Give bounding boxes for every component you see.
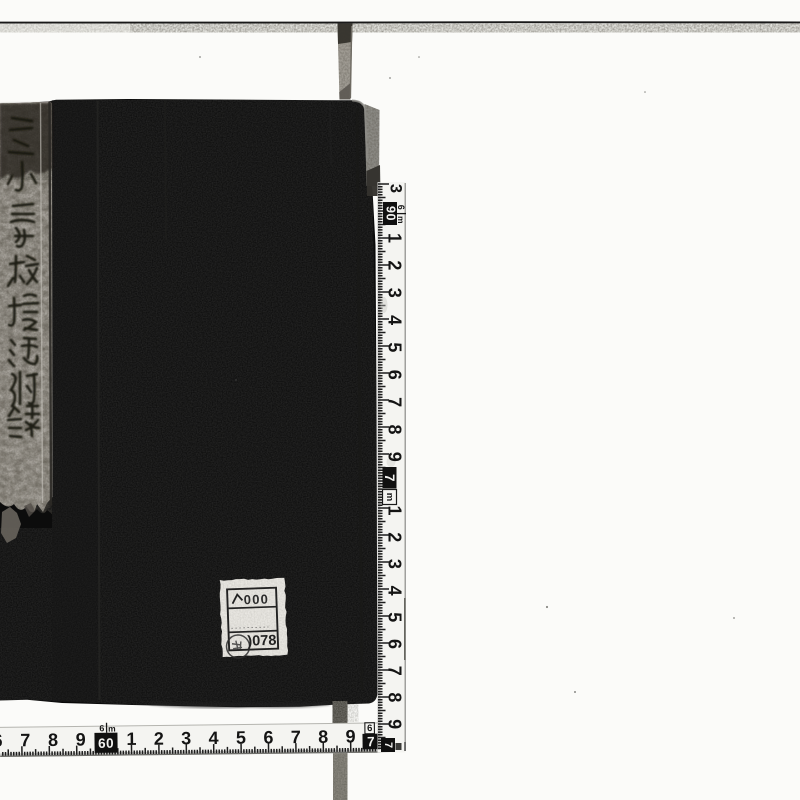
- svg-text:8: 8: [318, 727, 328, 747]
- svg-text:6: 6: [385, 639, 405, 649]
- svg-text:60: 60: [98, 736, 114, 751]
- svg-text:m: m: [396, 216, 406, 224]
- svg-text:7: 7: [20, 730, 30, 750]
- svg-text:7: 7: [291, 727, 301, 747]
- svg-text:3: 3: [385, 288, 405, 298]
- svg-text:m: m: [384, 493, 395, 501]
- svg-text:9: 9: [385, 719, 405, 729]
- svg-text:6: 6: [385, 370, 405, 380]
- svg-text:7: 7: [367, 734, 375, 749]
- svg-text:4: 4: [385, 586, 405, 596]
- svg-text:8: 8: [385, 692, 405, 702]
- svg-text:7: 7: [385, 666, 405, 676]
- svg-text:2: 2: [385, 260, 405, 270]
- svg-text:7: 7: [382, 742, 394, 748]
- svg-text:5: 5: [236, 728, 246, 748]
- svg-text:)078: )078: [247, 633, 277, 650]
- svg-text:3: 3: [387, 184, 405, 193]
- svg-text:6: 6: [367, 723, 372, 734]
- svg-text:3: 3: [181, 728, 191, 748]
- svg-text:7: 7: [382, 474, 397, 482]
- svg-text:7: 7: [385, 397, 405, 407]
- svg-text:4: 4: [385, 315, 405, 325]
- svg-text:6: 6: [396, 205, 406, 210]
- svg-text:m: m: [108, 724, 116, 734]
- svg-text:4: 4: [208, 728, 218, 748]
- svg-text:6: 6: [0, 730, 3, 750]
- svg-text:1: 1: [385, 233, 405, 243]
- svg-text:6: 6: [99, 723, 104, 733]
- svg-text:5: 5: [385, 612, 405, 622]
- svg-text:5: 5: [385, 342, 405, 352]
- svg-text:9: 9: [345, 726, 355, 746]
- svg-text:2: 2: [385, 532, 405, 542]
- svg-text:000: 000: [244, 591, 270, 607]
- svg-text:8: 8: [48, 730, 58, 750]
- svg-text:1: 1: [385, 505, 405, 515]
- svg-text:9: 9: [76, 730, 86, 750]
- svg-text:1: 1: [126, 729, 136, 749]
- svg-text:8: 8: [385, 424, 405, 434]
- svg-text:9: 9: [385, 452, 405, 462]
- svg-text:6: 6: [263, 727, 273, 747]
- svg-text:3: 3: [385, 559, 405, 569]
- svg-text:2: 2: [154, 729, 164, 749]
- svg-text:90: 90: [383, 206, 397, 221]
